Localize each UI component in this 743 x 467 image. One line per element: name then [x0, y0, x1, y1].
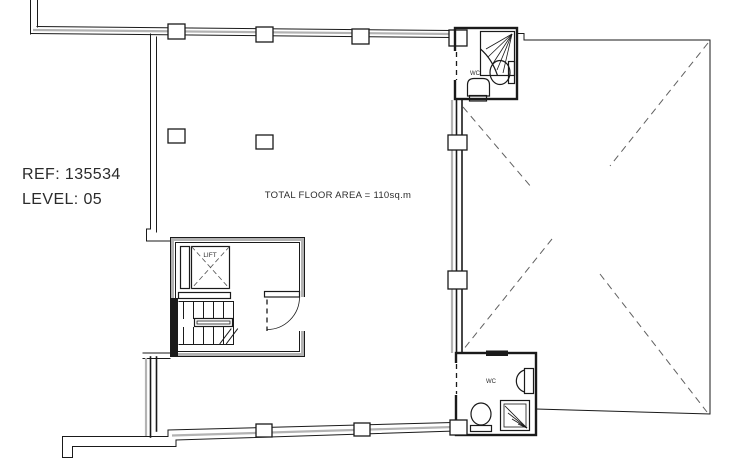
bottom-wall [63, 420, 468, 458]
left-wall-lower [143, 353, 170, 437]
lobby-door [265, 292, 300, 332]
floor-plan-canvas: LIFT [0, 0, 743, 467]
floor-area-label: TOTAL FLOOR AREA = 110sq.m [265, 190, 412, 201]
reference-labels: REF: 135534 LEVEL: 05 [22, 166, 121, 208]
lift-label: LIFT [203, 252, 216, 259]
door-swing-arc [267, 297, 300, 330]
top-wall [31, 27, 453, 38]
top-left-wall-stub [31, 0, 38, 34]
void-area [463, 40, 710, 414]
shower-bottom [501, 401, 530, 431]
toilet-top [490, 61, 515, 85]
level-label: LEVEL: 05 [22, 191, 102, 208]
ref-label: REF: 135534 [22, 166, 121, 183]
stair-handrail [195, 319, 233, 327]
sink-top [468, 79, 490, 102]
right-wall [448, 100, 467, 353]
staircase [179, 302, 238, 345]
wc-bottom-label: WC [486, 379, 497, 385]
wc-top-label: WC [470, 71, 481, 77]
lift: LIFT [179, 247, 231, 299]
interior-columns [168, 129, 273, 149]
floor-plan-drawing: LIFT [0, 0, 743, 467]
sink-bottom [516, 369, 533, 394]
toilet-bottom [471, 403, 492, 432]
